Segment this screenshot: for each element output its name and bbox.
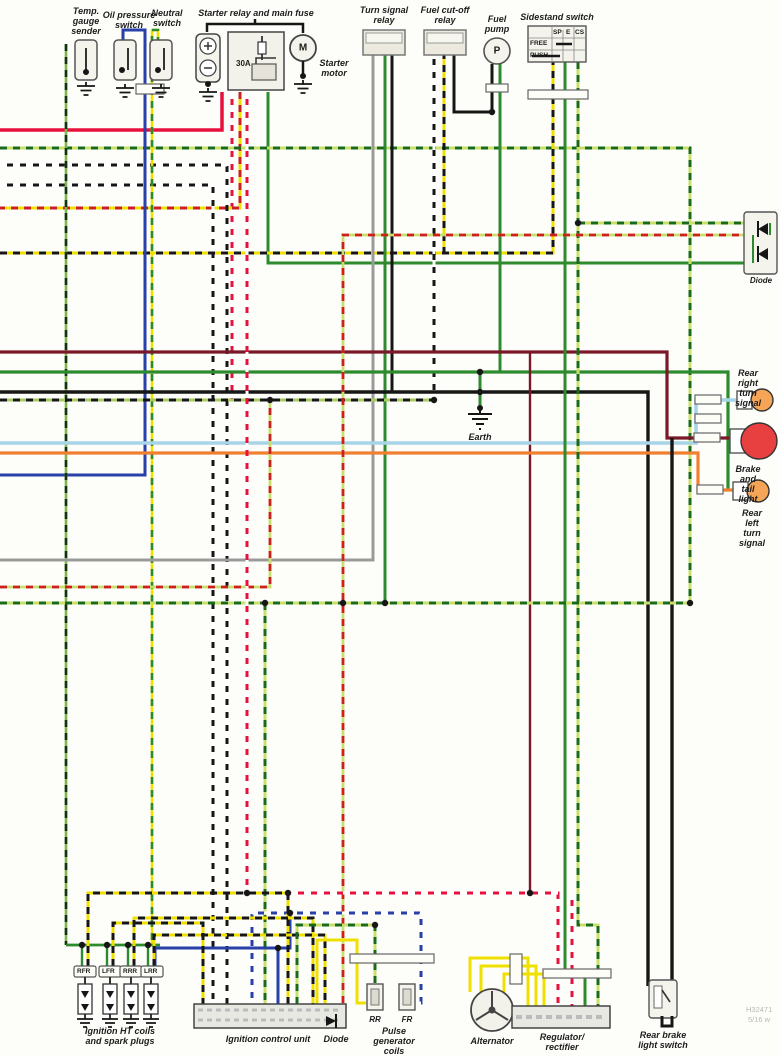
earth-label: Earth [468, 432, 491, 442]
pulse-generator-coils-symbol [367, 984, 415, 1010]
fuel-pump-label: Fuel pump [485, 14, 510, 34]
sidestand-row-free: FREE [530, 40, 547, 47]
spark-plug [123, 977, 139, 1027]
diode-right-symbol [744, 212, 777, 274]
component-layer [0, 0, 780, 1057]
coil-1-label: RFR [77, 968, 90, 975]
turn-signal-relay-symbol [363, 30, 405, 55]
turn-signal-relay-label: Turn signal relay [360, 5, 408, 25]
wiring-diagram: Temp. gauge sender Oil pressure switch N… [0, 0, 780, 1057]
rear-brake-light-switch-label: Rear brake light switch [638, 1030, 688, 1050]
pulse-generator-coils-label: Pulse generator coils [373, 1026, 415, 1056]
oil-pressure-switch-symbol [114, 40, 136, 97]
coil-4-label: LRR [144, 968, 157, 975]
sidestand-col-sp: SP [553, 29, 562, 36]
neutral-switch-label: Neutral switch [151, 8, 182, 28]
starter-relay-bracket [207, 19, 303, 33]
rear-right-turn-signal-label: Rear right turn signal [732, 368, 764, 408]
sidestand-row-push: PUSH [530, 52, 548, 59]
motor-m-label: M [299, 42, 307, 53]
starter-relay-label: Starter relay and main fuse [198, 8, 314, 18]
spark-plug [102, 977, 118, 1027]
neutral-switch-symbol [150, 40, 172, 97]
rear-left-turn-signal-label: Rear left turn signal [738, 508, 766, 548]
ignition-control-unit-symbol [194, 1004, 346, 1028]
brake-tail-light-label: Brake and tail light [732, 464, 764, 504]
sidestand-col-cs: CS [575, 29, 584, 36]
ref-code-label: H32471 [746, 1006, 772, 1014]
pulse-rr-label: RR [369, 1016, 381, 1025]
alternator-symbol [471, 989, 513, 1031]
temp-gauge-sender-label: Temp. gauge sender [71, 6, 101, 36]
starter-motor-label: Starter motor [319, 58, 348, 78]
coil-2-label: LFR [102, 968, 115, 975]
alternator-label: Alternator [470, 1036, 513, 1046]
ref-rev-label: 5/16 w [748, 1016, 770, 1024]
diode-bottom-label: Diode [323, 1034, 348, 1044]
brake-tail-light-bulb [730, 423, 777, 459]
fuel-cutoff-relay-symbol [424, 30, 466, 55]
oil-pressure-switch-label: Oil pressure switch [103, 10, 156, 30]
sidestand-switch-label: Sidestand switch [520, 12, 594, 22]
regulator-rectifier-symbol [512, 1006, 610, 1028]
battery-symbol [196, 34, 220, 101]
fuel-cutoff-relay-label: Fuel cut-off relay [421, 5, 470, 25]
pump-p-label: P [494, 45, 501, 56]
fuse-rating-label: 30A [236, 60, 251, 69]
rear-brake-light-switch-symbol [649, 980, 677, 1026]
coil-3-label: RRR [123, 968, 137, 975]
pulse-fr-label: FR [402, 1016, 413, 1025]
sidestand-col-e: E [566, 29, 570, 36]
diode-right-label: Diode [750, 277, 772, 286]
temp-gauge-sender-symbol [75, 40, 97, 95]
earth-symbol [468, 405, 492, 429]
spark-plug [143, 977, 159, 1027]
ignition-coils-label: Ignition HT coils and spark plugs [85, 1026, 155, 1046]
regulator-rectifier-label: Regulator/ rectifier [540, 1032, 585, 1052]
ignition-control-unit-label: Ignition control unit [226, 1034, 310, 1044]
spark-plug [77, 977, 93, 1027]
